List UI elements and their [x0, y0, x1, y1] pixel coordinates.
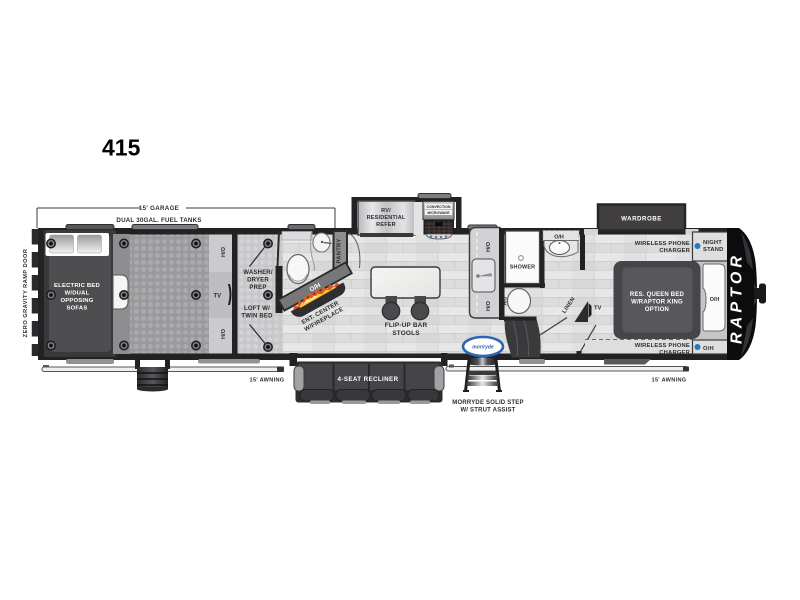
svg-text:H/O: H/O: [486, 300, 492, 311]
svg-text:O/H: O/H: [703, 346, 714, 352]
svg-text:MORRYDE SOLID STEP: MORRYDE SOLID STEP: [452, 400, 523, 406]
svg-text:WIRELESS PHONE: WIRELESS PHONE: [635, 343, 690, 349]
svg-text:15' GARAGE: 15' GARAGE: [139, 205, 179, 212]
svg-text:MICROWAVE: MICROWAVE: [427, 211, 450, 215]
svg-text:H/O: H/O: [221, 246, 227, 257]
svg-text:4-SEAT RECLINER: 4-SEAT RECLINER: [338, 376, 399, 383]
svg-text:mor/ryde: mor/ryde: [472, 345, 494, 351]
svg-text:PANTRY: PANTRY: [337, 239, 343, 264]
svg-text:REFER: REFER: [376, 222, 396, 228]
svg-text:CHARGER: CHARGER: [659, 350, 690, 356]
svg-text:LOFT W/: LOFT W/: [244, 306, 270, 312]
svg-text:RESIDENTIAL: RESIDENTIAL: [367, 215, 406, 221]
svg-text:WARDROBE: WARDROBE: [621, 216, 662, 223]
svg-text:O/H: O/H: [710, 297, 720, 303]
svg-text:H/O: H/O: [486, 241, 492, 252]
svg-text:RV/: RV/: [381, 208, 391, 214]
svg-text:STOOLS: STOOLS: [392, 330, 420, 337]
svg-text:NIGHT: NIGHT: [703, 240, 722, 246]
svg-text:15' AWNING: 15' AWNING: [652, 378, 687, 384]
svg-text:STAND: STAND: [703, 247, 724, 253]
svg-text:ELECTRIC BED: ELECTRIC BED: [54, 283, 100, 289]
svg-text:RES. QUEEN BED: RES. QUEEN BED: [630, 292, 685, 298]
svg-text:O/H: O/H: [554, 235, 564, 241]
svg-text:W/RAPTOR KING: W/RAPTOR KING: [631, 300, 683, 306]
svg-text:WASHER/: WASHER/: [243, 270, 273, 276]
svg-text:OPPOSING: OPPOSING: [60, 298, 93, 304]
svg-text:OPTION: OPTION: [645, 307, 669, 313]
svg-text:TV: TV: [594, 306, 602, 312]
svg-text:15' AWNING: 15' AWNING: [250, 378, 285, 384]
svg-text:W/ STRUT ASSIST: W/ STRUT ASSIST: [460, 408, 515, 414]
svg-text:TWIN BED: TWIN BED: [241, 314, 273, 320]
svg-text:PREP: PREP: [249, 285, 266, 291]
svg-text:DUAL 30GAL. FUEL TANKS: DUAL 30GAL. FUEL TANKS: [116, 217, 201, 224]
svg-text:WIRELESS PHONE: WIRELESS PHONE: [635, 241, 690, 247]
svg-text:CHARGER: CHARGER: [659, 248, 690, 254]
svg-text:DRYER: DRYER: [247, 278, 269, 284]
svg-text:CONVECTION: CONVECTION: [427, 205, 451, 209]
svg-text:H/O: H/O: [503, 296, 509, 305]
svg-text:TV: TV: [214, 294, 222, 300]
svg-text:SHOWER: SHOWER: [510, 265, 535, 271]
svg-text:FLIP-UP BAR: FLIP-UP BAR: [385, 322, 428, 329]
svg-text:W/DUAL: W/DUAL: [65, 291, 90, 297]
svg-text:SOFAS: SOFAS: [67, 306, 88, 312]
svg-text:ZERO GRAVITY RAMP DOOR: ZERO GRAVITY RAMP DOOR: [23, 249, 29, 338]
svg-text:H/O: H/O: [221, 328, 227, 339]
svg-text:415: 415: [102, 135, 141, 161]
